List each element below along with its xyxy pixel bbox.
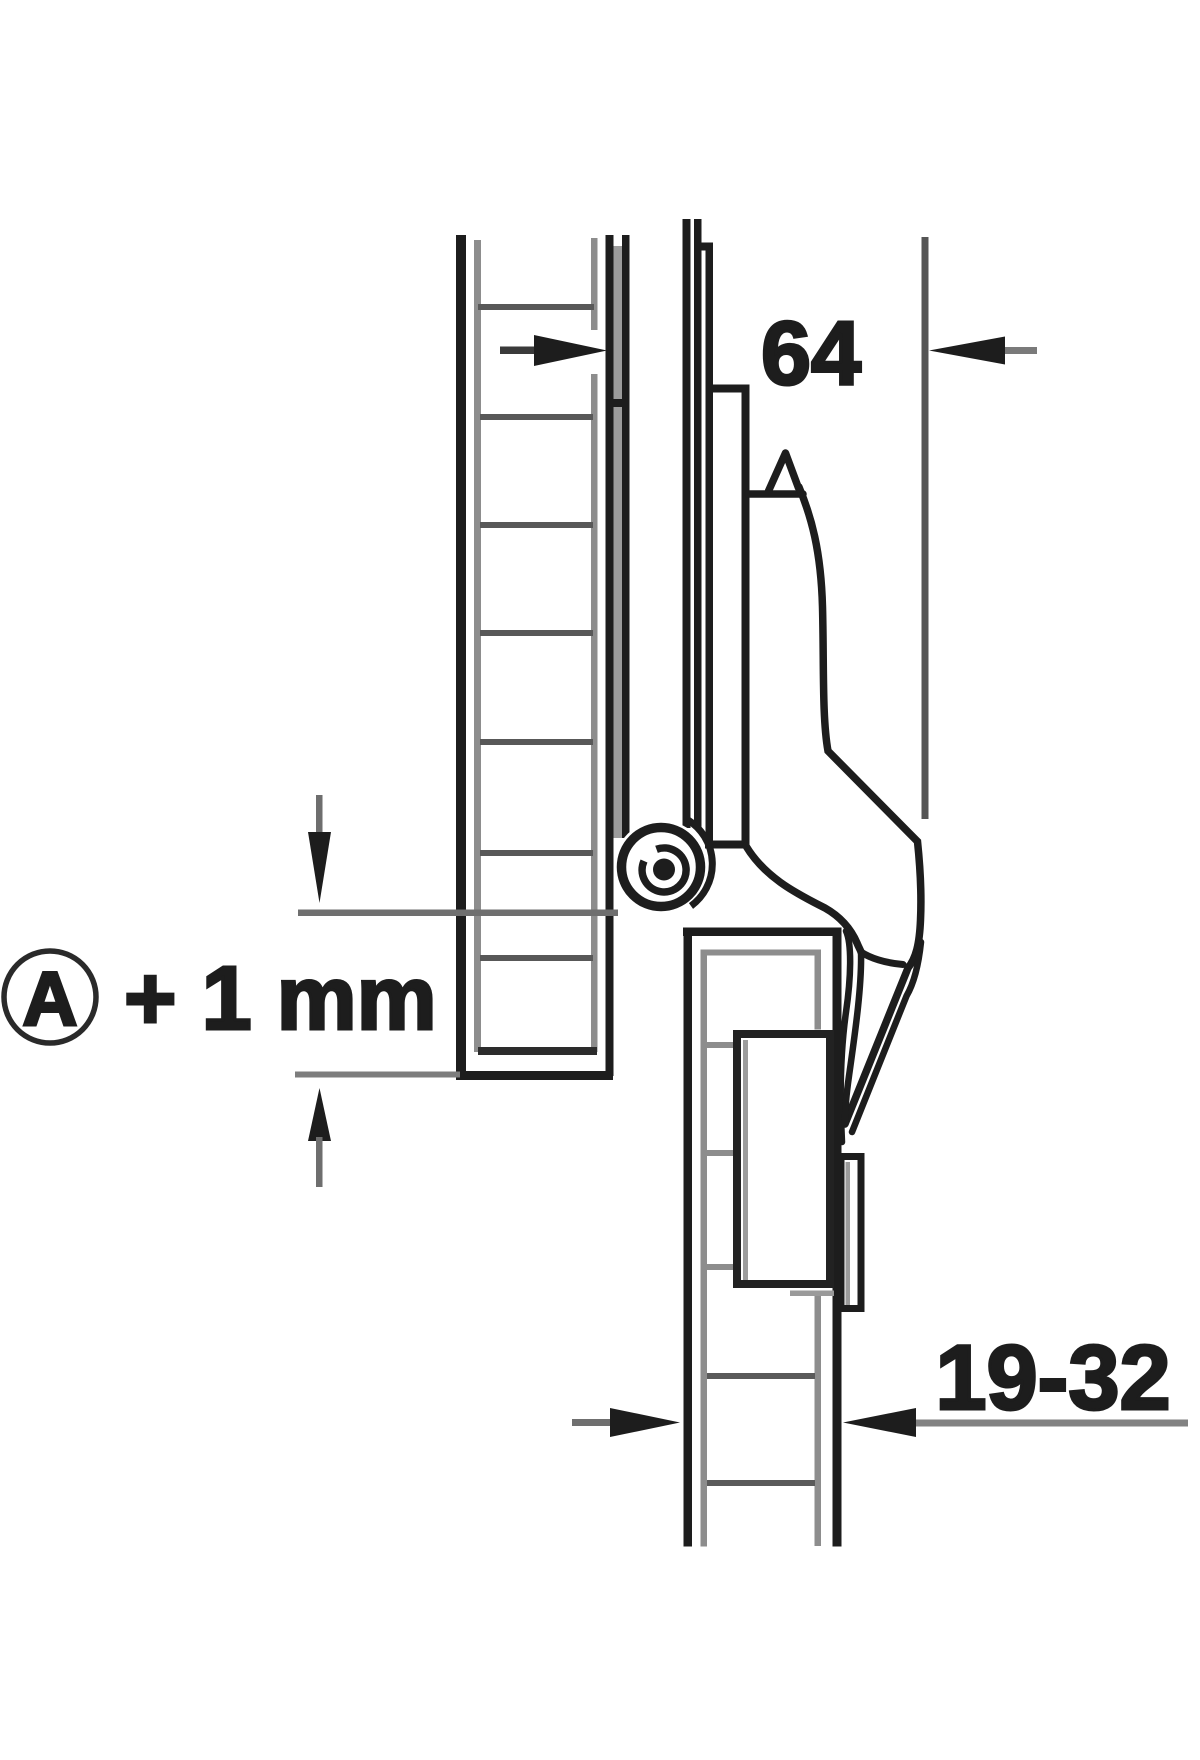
- svg-text:+ 1 mm: + 1 mm: [124, 949, 437, 1049]
- svg-text:64: 64: [761, 304, 861, 404]
- svg-text:19-32: 19-32: [935, 1327, 1170, 1429]
- svg-text:A: A: [23, 957, 78, 1042]
